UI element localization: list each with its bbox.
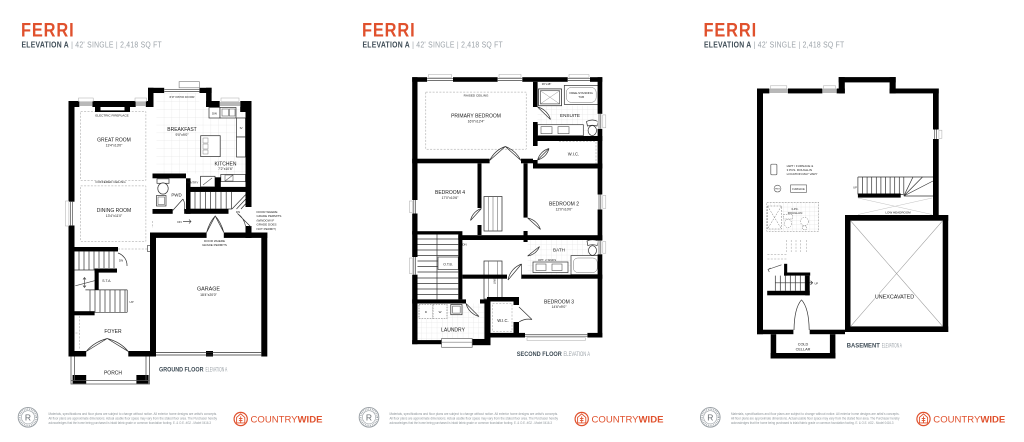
svg-text:W.I.C.: W.I.C. bbox=[497, 318, 508, 323]
svg-text:All floor plans are approximat: All floor plans are approximate dimensio… bbox=[390, 417, 559, 421]
svg-text:9'0"x9'0": 9'0"x9'0" bbox=[176, 133, 190, 137]
svg-text:13'4"x11'0": 13'4"x11'0" bbox=[106, 214, 123, 218]
svg-text:ELECTRIC FIREPLACE: ELECTRIC FIREPLACE bbox=[95, 114, 128, 118]
svg-text:36"x48": 36"x48" bbox=[542, 82, 552, 86]
svg-text:UP: UP bbox=[815, 281, 819, 285]
svg-text:HWT: HWT bbox=[775, 189, 781, 191]
svg-text:All floor plans are approximat: All floor plans are approximate dimensio… bbox=[49, 417, 218, 421]
svg-text:OPT. 2 SINKS: OPT. 2 SINKS bbox=[538, 258, 556, 262]
svg-text:R: R bbox=[25, 412, 31, 422]
svg-text:COFFERED CEILING: COFFERED CEILING bbox=[95, 180, 126, 184]
svg-text:13'4"x13'0": 13'4"x13'0" bbox=[106, 143, 124, 147]
svg-text:CELLAR: CELLAR bbox=[796, 347, 811, 351]
svg-text:NOT PERMIT): NOT PERMIT) bbox=[257, 227, 276, 231]
svg-text:16'0"x12'4": 16'0"x12'4" bbox=[468, 119, 486, 123]
svg-text:LAUNDRY: LAUNDRY bbox=[441, 327, 465, 333]
svg-text:S/: S/ bbox=[240, 126, 243, 130]
svg-text:UP: UP bbox=[129, 300, 133, 304]
svg-text:Materials, specifications and: Materials, specifications and floor plan… bbox=[390, 412, 559, 416]
svg-text:FOYER: FOYER bbox=[104, 329, 122, 335]
svg-text:ELEVATION A | 42' SINGLE | 2,4: ELEVATION A | 42' SINGLE | 2,418 SQ FT bbox=[22, 41, 163, 50]
svg-text:UNEXCAVATED: UNEXCAVATED bbox=[875, 295, 914, 301]
svg-text:LOCATION MAY VARY: LOCATION MAY VARY bbox=[787, 172, 818, 176]
svg-text:RAISED CEILING: RAISED CEILING bbox=[464, 93, 489, 97]
svg-text:LOW HEADROOM: LOW HEADROOM bbox=[885, 210, 911, 214]
svg-text:12'0"x10'0": 12'0"x10'0" bbox=[556, 207, 574, 211]
svg-text:DN: DN bbox=[236, 210, 240, 214]
svg-text:R: R bbox=[707, 412, 713, 422]
svg-text:FERRI: FERRI bbox=[362, 21, 416, 42]
svg-text:BASEMENT: BASEMENT bbox=[847, 343, 880, 350]
svg-text:acknowledges that the home bei: acknowledges that the home being purchas… bbox=[390, 421, 553, 425]
svg-text:COUNTRYWIDE: COUNTRYWIDE bbox=[592, 414, 665, 425]
svg-text:W: W bbox=[439, 310, 442, 314]
svg-text:ELEVATION A: ELEVATION A bbox=[882, 343, 902, 350]
svg-text:ELEVATION A | 42' SINGLE | 2,4: ELEVATION A | 42' SINGLE | 2,418 SQ FT bbox=[704, 41, 845, 50]
svg-text:ENSUITE: ENSUITE bbox=[560, 113, 580, 118]
svg-text:ELEVATION A: ELEVATION A bbox=[206, 367, 228, 374]
svg-text:All floor plans are approximat: All floor plans are approximate dimensio… bbox=[731, 417, 900, 421]
svg-text:18'4"x20'0": 18'4"x20'0" bbox=[200, 293, 218, 297]
svg-text:R: R bbox=[366, 412, 372, 422]
svg-text:W.I.C.: W.I.C. bbox=[568, 152, 579, 157]
svg-text:UP: UP bbox=[853, 185, 857, 189]
svg-text:S.T.A.: S.T.A. bbox=[102, 279, 111, 283]
svg-text:COLD: COLD bbox=[798, 343, 809, 347]
svg-text:acknowledges that the home bei: acknowledges that the home being purchas… bbox=[731, 421, 894, 425]
svg-text:PWD: PWD bbox=[171, 193, 181, 198]
svg-text:7'2"x10'6": 7'2"x10'6" bbox=[218, 167, 234, 171]
svg-text:GRADE PERMITS: GRADE PERMITS bbox=[202, 243, 227, 247]
svg-text:DN: DN bbox=[462, 243, 466, 247]
svg-text:Materials, specifications and: Materials, specifications and floor plan… bbox=[731, 412, 900, 416]
svg-text:Materials, specifications and: Materials, specifications and floor plan… bbox=[49, 412, 218, 416]
svg-text:COUNTRYWIDE: COUNTRYWIDE bbox=[933, 414, 1006, 425]
svg-text:ELEVATION A | 42' SINGLE | 2,4: ELEVATION A | 42' SINGLE | 2,418 SQ FT bbox=[363, 41, 504, 50]
svg-text:ROUGH-IN: ROUGH-IN bbox=[788, 211, 803, 215]
svg-text:PANTRY: PANTRY bbox=[186, 180, 198, 184]
svg-text:PORCH: PORCH bbox=[104, 371, 122, 377]
svg-text:GROUND FLOOR: GROUND FLOOR bbox=[159, 367, 204, 374]
svg-text:6'0" PATIO DOOR: 6'0" PATIO DOOR bbox=[170, 95, 196, 99]
svg-text:O.T.B.: O.T.B. bbox=[443, 263, 452, 267]
svg-text:FERRI: FERRI bbox=[704, 21, 758, 42]
svg-text:FERRI: FERRI bbox=[21, 21, 75, 42]
svg-text:GARAGE: GARAGE bbox=[197, 287, 220, 293]
svg-text:FURNACE: FURNACE bbox=[792, 187, 805, 191]
svg-text:BATH: BATH bbox=[553, 248, 565, 253]
svg-text:DW: DW bbox=[212, 112, 217, 116]
svg-text:acknowledges that the home bei: acknowledges that the home being purchas… bbox=[49, 421, 212, 425]
svg-text:14'6"x9'0": 14'6"x9'0" bbox=[552, 305, 568, 309]
svg-text:COUNTRYWIDE: COUNTRYWIDE bbox=[251, 414, 324, 425]
svg-text:ELEVATION A: ELEVATION A bbox=[564, 351, 591, 358]
svg-text:17'0"x10'6": 17'0"x10'6" bbox=[442, 196, 460, 200]
svg-text:TUB: TUB bbox=[578, 95, 584, 99]
svg-text:DN: DN bbox=[177, 220, 181, 224]
svg-text:SECOND FLOOR: SECOND FLOOR bbox=[517, 351, 562, 358]
svg-text:DN: DN bbox=[119, 259, 123, 263]
